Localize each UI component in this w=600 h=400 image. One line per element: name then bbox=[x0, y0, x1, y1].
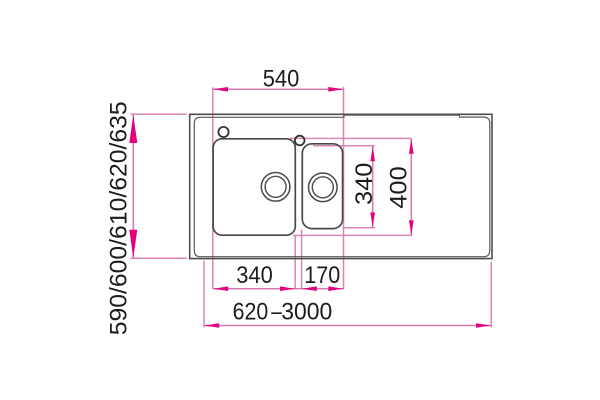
svg-text:170: 170 bbox=[304, 262, 340, 289]
svg-text:400: 400 bbox=[385, 166, 412, 209]
svg-text:340: 340 bbox=[236, 262, 273, 289]
svg-text:620: 620 bbox=[233, 299, 269, 326]
svg-text:3000: 3000 bbox=[281, 299, 332, 326]
svg-text:340: 340 bbox=[351, 163, 378, 206]
svg-text:590/600/610/620/635: 590/600/610/620/635 bbox=[105, 101, 132, 335]
svg-text:540: 540 bbox=[263, 66, 300, 93]
